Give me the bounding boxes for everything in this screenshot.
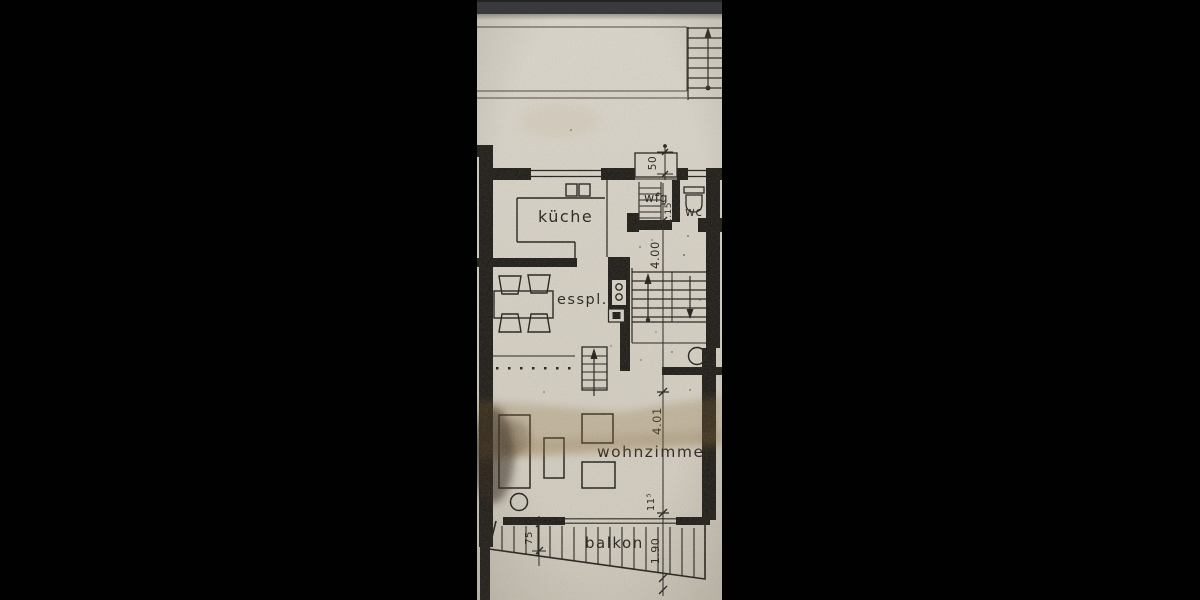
- photo-top-bar-shadow: [477, 14, 722, 20]
- letterbox-right: [722, 0, 1200, 600]
- photo-viewer: küche esspl. wfg wc wohnzimmer balkon 50…: [0, 0, 1200, 600]
- paper-vignette: [477, 0, 722, 600]
- floorplan-photo: küche esspl. wfg wc wohnzimmer balkon 50…: [477, 0, 722, 600]
- letterbox-left: [0, 0, 477, 600]
- photo-top-bar: [477, 0, 722, 14]
- floorplan-drawing: küche esspl. wfg wc wohnzimmer balkon 50…: [477, 0, 722, 600]
